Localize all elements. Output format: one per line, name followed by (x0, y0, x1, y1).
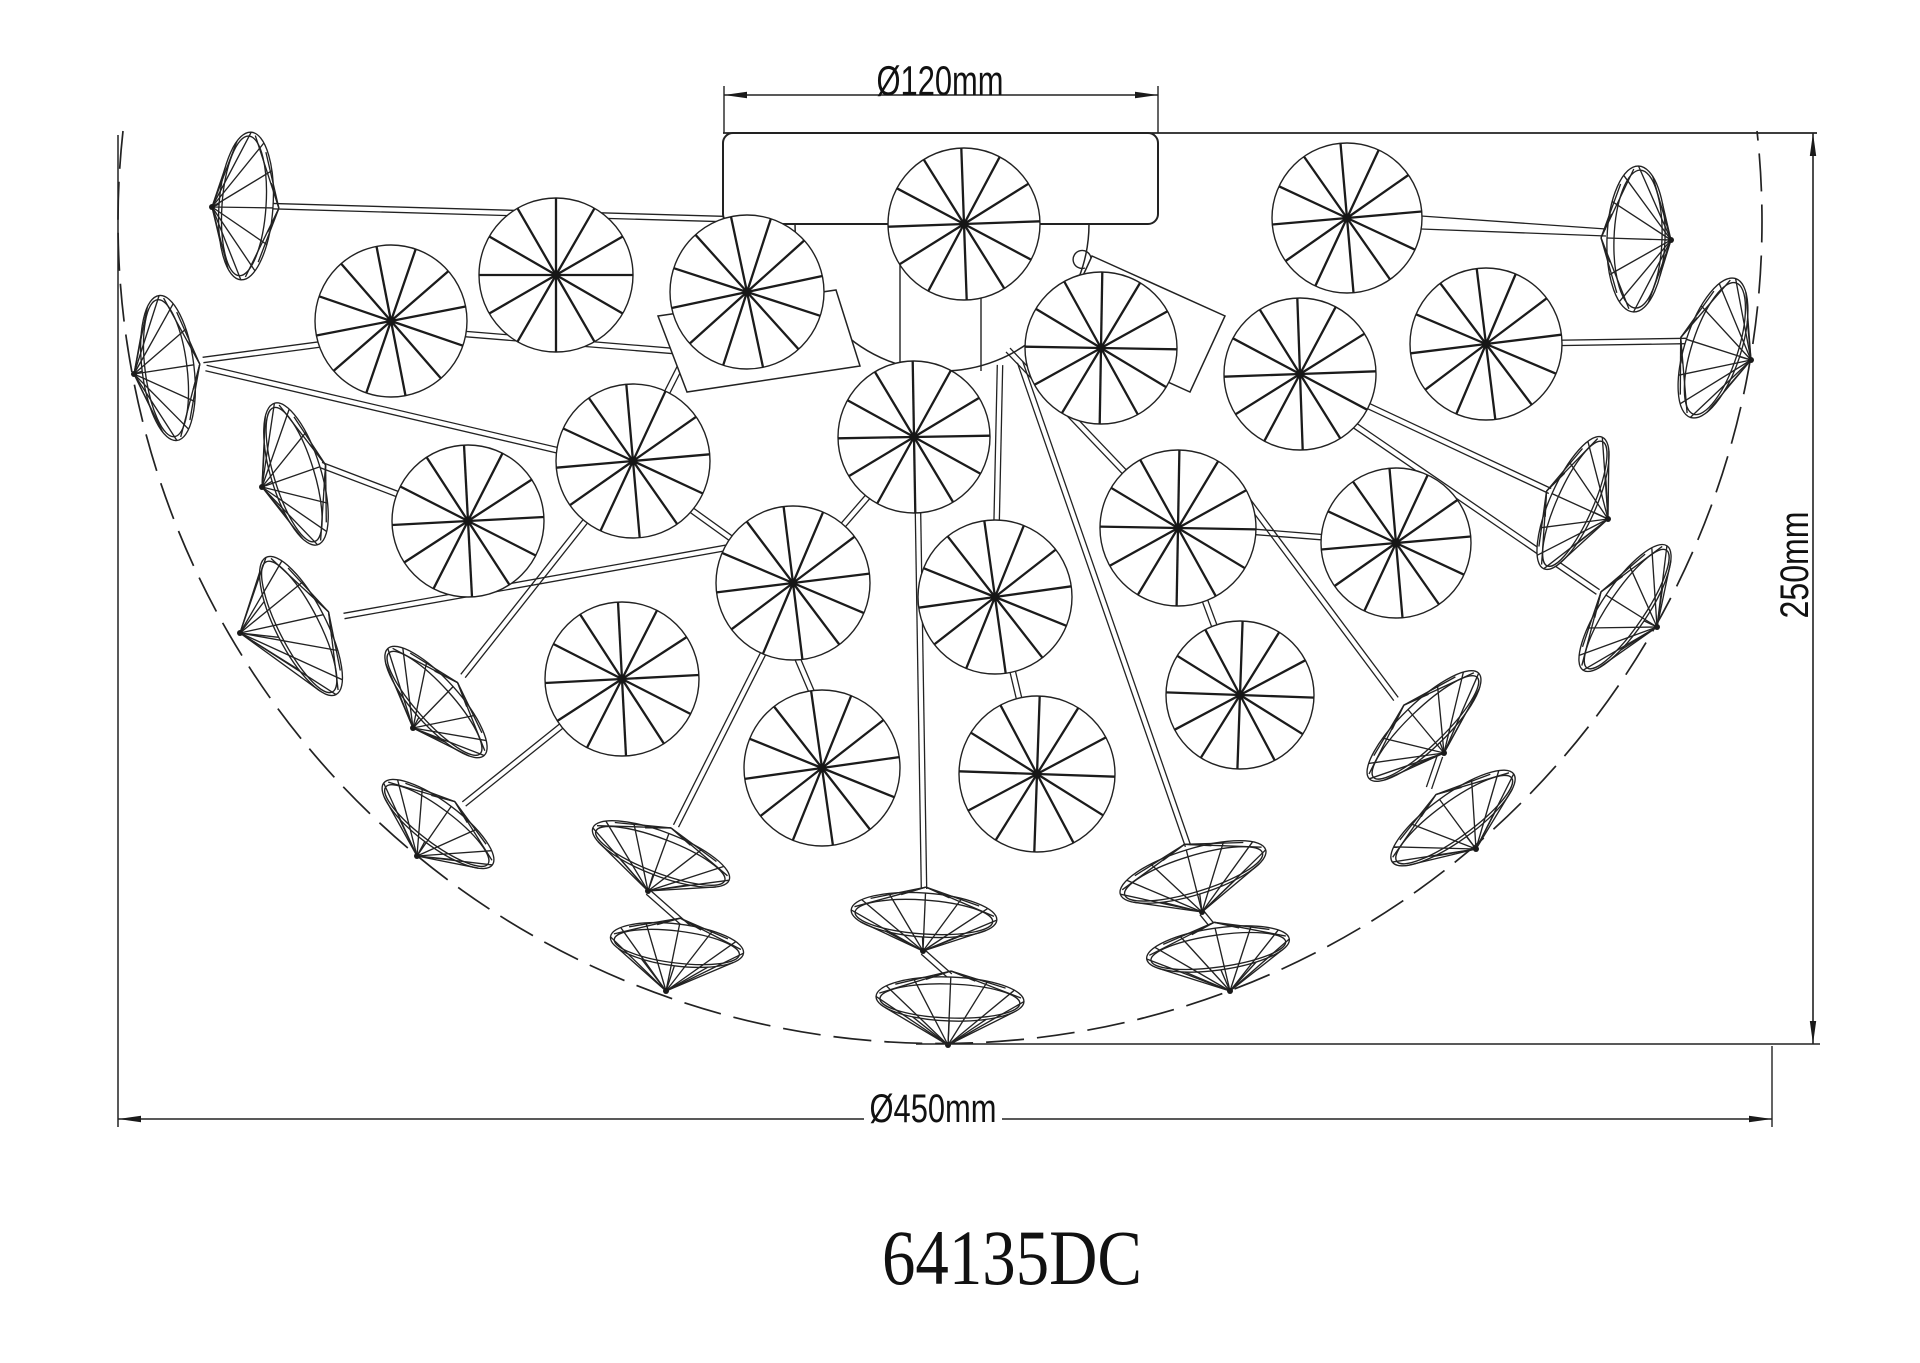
svg-text:250mm: 250mm (1773, 512, 1817, 619)
svg-text:Ø120mm: Ø120mm (877, 57, 1004, 104)
svg-text:Ø450mm: Ø450mm (870, 1087, 997, 1131)
svg-text:64135DC: 64135DC (882, 1214, 1142, 1301)
